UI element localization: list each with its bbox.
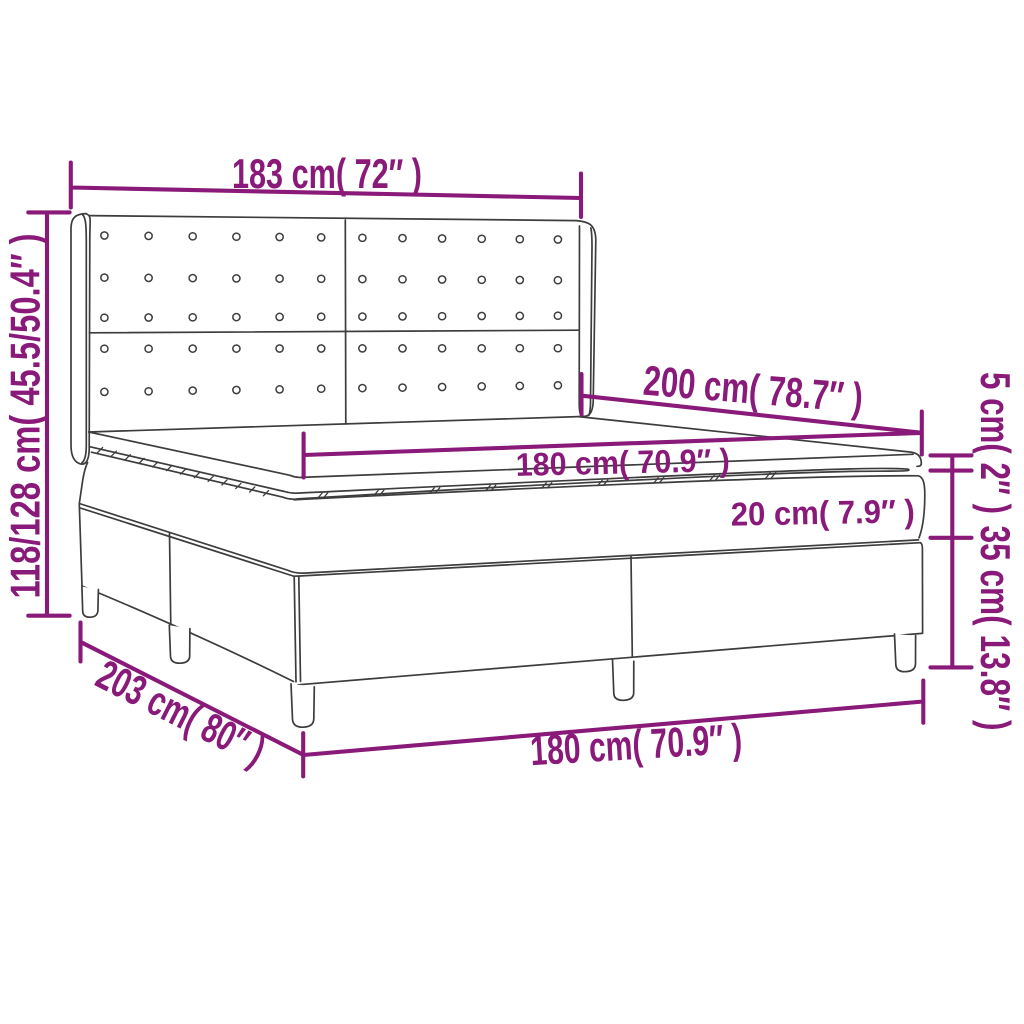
svg-text:5 cm( 2″ ): 5 cm( 2″ )	[972, 372, 1019, 514]
svg-text:20 cm( 7.9″ ): 20 cm( 7.9″ )	[730, 492, 915, 532]
svg-text:183 cm( 72″ ): 183 cm( 72″ )	[232, 150, 422, 197]
svg-text:118/128 cm( 45.5/50.4″ ): 118/128 cm( 45.5/50.4″ )	[2, 234, 49, 599]
svg-text:180 cm( 70.9″ ): 180 cm( 70.9″ )	[515, 442, 730, 483]
svg-text:35 cm( 13.8″ ): 35 cm( 13.8″ )	[972, 526, 1019, 731]
